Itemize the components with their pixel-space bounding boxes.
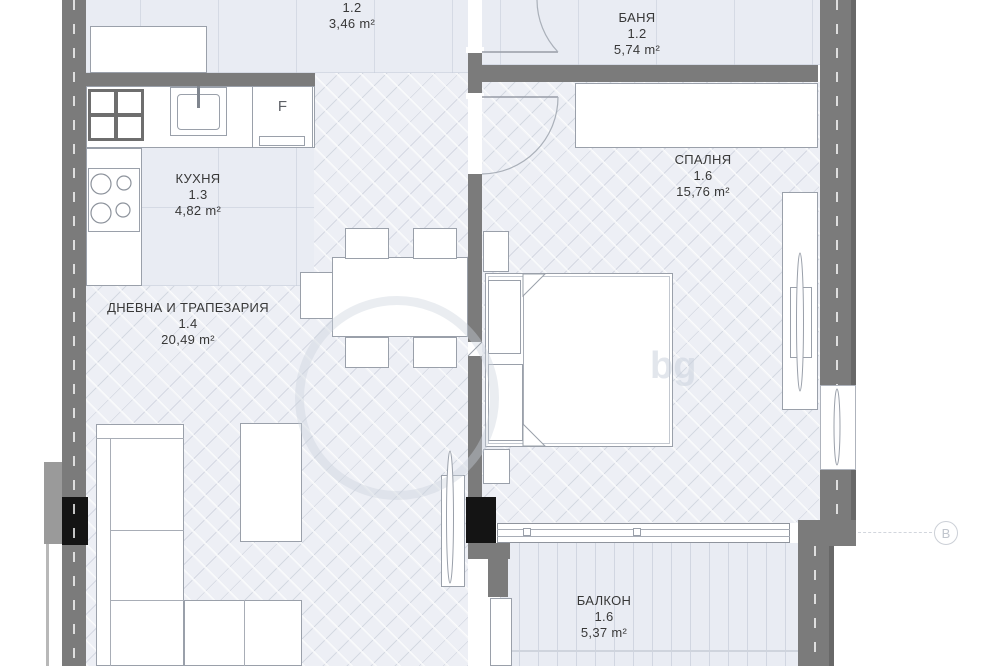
dining-chair: [413, 337, 457, 368]
balcony-door-threshold: [490, 598, 512, 666]
sliding-window-handle: [523, 528, 531, 536]
hallway-closet: [90, 26, 207, 73]
bed-pillow: [488, 364, 523, 441]
sliding-window-handle: [633, 528, 641, 536]
sofa-cushion-line: [110, 530, 184, 531]
sofa-cushion-line: [110, 600, 184, 601]
sofa-chaise: [184, 600, 302, 666]
kitchen-name: КУХНЯ: [128, 171, 268, 187]
sliding-window-track: [497, 529, 790, 530]
balcony-railing-line: [505, 650, 805, 652]
living-label: ДНЕВНА И ТРАПЕЗАРИЯ 1.4 20,49 m²: [88, 300, 288, 348]
bedroom-name: СПАЛНЯ: [633, 152, 773, 168]
nightstand: [483, 449, 510, 484]
hallway-area: 3,46 m²: [282, 16, 422, 32]
bathroom-bottom-wall: [482, 65, 818, 82]
balcony-partition-wall-v: [488, 559, 508, 597]
left-wall-centerline: [73, 0, 75, 666]
bathroom-label: БАНЯ 1.2 5,74 m²: [567, 10, 707, 58]
central-wall: [468, 174, 482, 497]
right-lower-wall-centerline: [814, 546, 816, 666]
balcony-sliding-window: [497, 523, 790, 543]
sliding-window-track: [497, 536, 790, 537]
bedroom-wardrobe: [575, 83, 818, 148]
exterior-edge-line: [46, 544, 49, 666]
hallway-label: 1.2 3,46 m²: [282, 0, 422, 32]
nightstand: [483, 231, 509, 272]
bed-pillow: [488, 280, 521, 354]
kitchen-label: КУХНЯ 1.3 4,82 m²: [128, 171, 268, 219]
tv-stand-living: [441, 475, 465, 587]
hallway-number: 1.2: [282, 0, 422, 16]
section-marker-line: [858, 532, 932, 533]
bedroom-area: 15,76 m²: [633, 184, 773, 200]
structural-column: [466, 497, 496, 543]
cabinet-door: [91, 92, 114, 113]
bathroom-number: 1.2: [567, 26, 707, 42]
dining-chair: [345, 337, 389, 368]
bedroom-number: 1.6: [633, 168, 773, 184]
wall-niche: [468, 342, 482, 356]
structural-column: [62, 497, 88, 545]
sofa-back-line: [110, 438, 111, 666]
fridge-label: F: [252, 98, 313, 115]
kitchen-cabinet-grid: [88, 89, 144, 141]
cabinet-door: [91, 117, 114, 138]
dining-chair: [345, 228, 389, 259]
bathroom-area: 5,74 m²: [567, 42, 707, 58]
bedroom-label: СПАЛНЯ 1.6 15,76 m²: [633, 152, 773, 200]
dining-table: [332, 257, 468, 337]
coffee-table: [240, 423, 302, 542]
living-number: 1.4: [88, 316, 288, 332]
dining-chair: [300, 272, 333, 319]
bedroom-window: [820, 385, 856, 470]
kitchen-number: 1.3: [128, 187, 268, 203]
balcony-partition-wall-h: [468, 543, 510, 559]
floor-plan: F: [0, 0, 1000, 666]
balcony-name: БАЛКОН: [534, 593, 674, 609]
balcony-label: БАЛКОН 1.6 5,37 m²: [534, 593, 674, 641]
sofa-chaise-line: [244, 600, 245, 666]
bed-mattress-line: [523, 274, 524, 446]
right-outer-wall-lower: [798, 546, 834, 666]
bedroom-dresser-inner: [790, 287, 812, 358]
balcony-number: 1.6: [534, 609, 674, 625]
living-name: ДНЕВНА И ТРАПЕЗАРИЯ: [88, 300, 288, 316]
living-area: 20,49 m²: [88, 332, 288, 348]
cabinet-door: [118, 92, 141, 113]
bathroom-name: БАНЯ: [567, 10, 707, 26]
door-frame-cap: [466, 47, 484, 53]
balcony-area: 5,37 m²: [534, 625, 674, 641]
cabinet-door: [118, 117, 141, 138]
door-frame-cap: [466, 93, 484, 99]
fridge-inner: [259, 136, 305, 146]
dining-chair: [413, 228, 457, 259]
right-wall-step: [798, 520, 856, 546]
kitchen-top-wall: [86, 73, 315, 86]
central-wall-door-block: [468, 52, 482, 93]
section-marker: B: [934, 521, 958, 545]
kitchen-area: 4,82 m²: [128, 203, 268, 219]
left-wall-stub: [44, 462, 62, 544]
